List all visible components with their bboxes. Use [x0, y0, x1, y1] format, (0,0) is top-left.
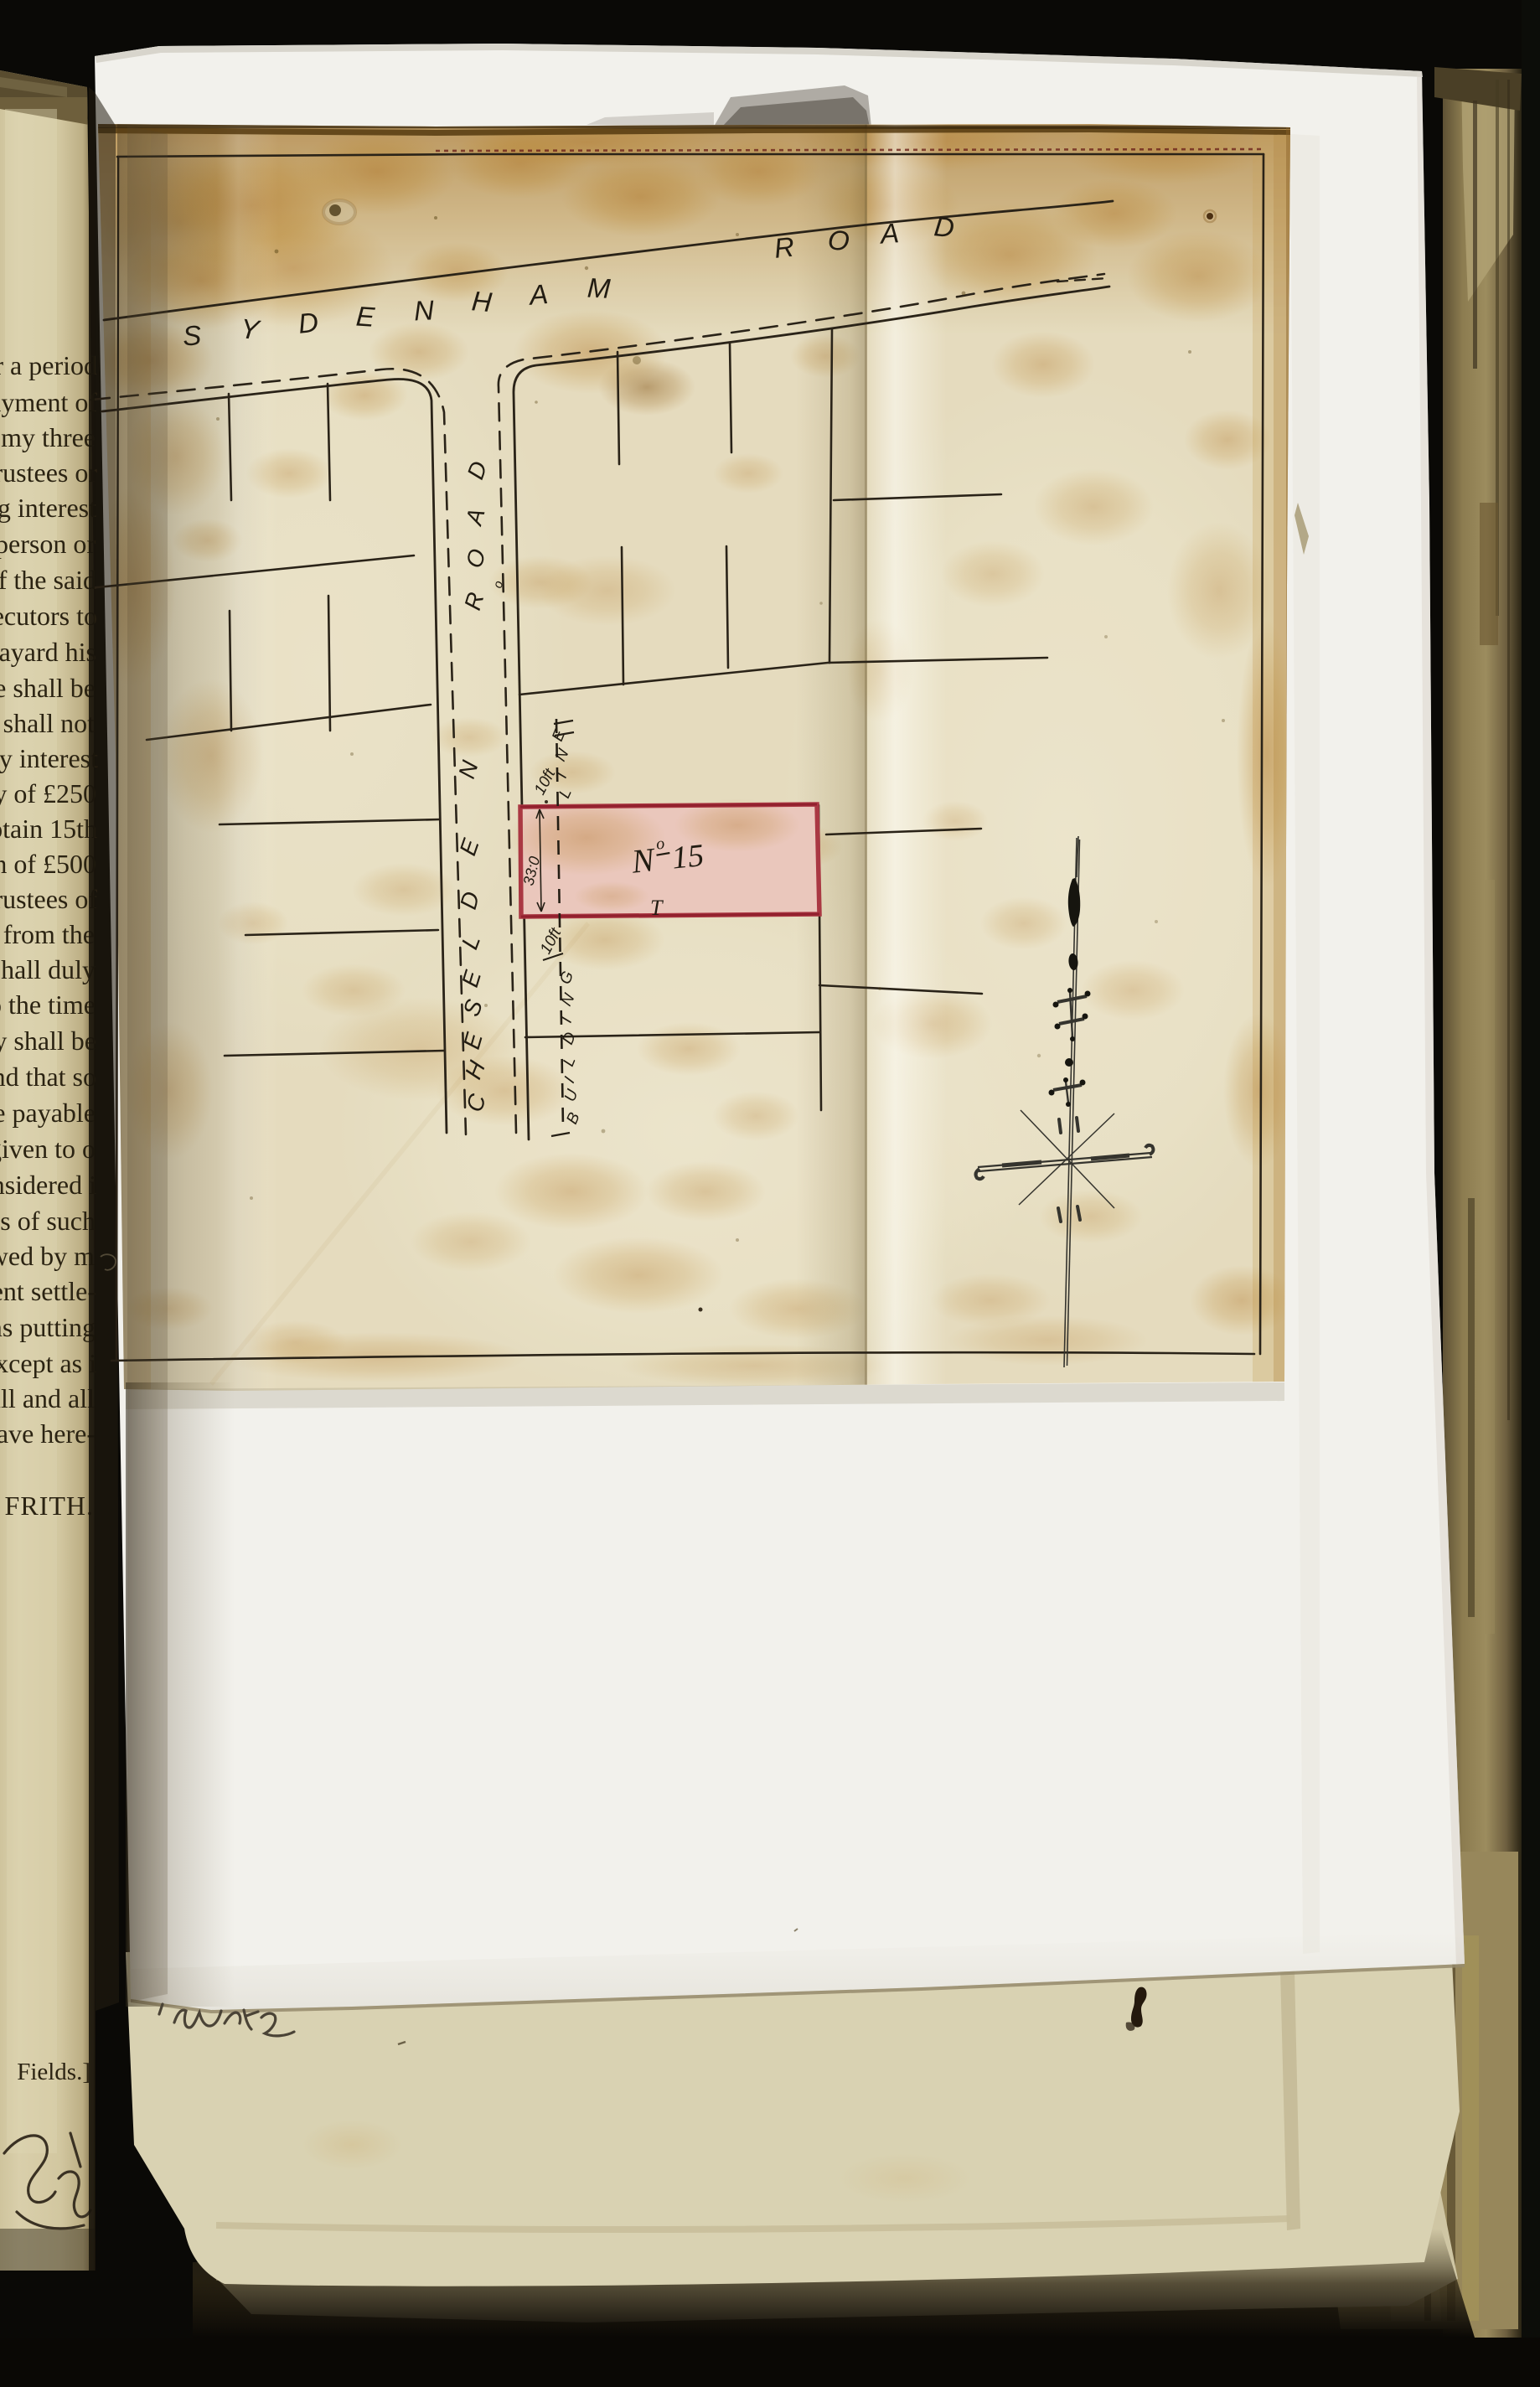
svg-text:shall duly: shall duly [0, 954, 96, 984]
svg-text:my three: my three [1, 422, 96, 452]
svg-text:H: H [470, 285, 493, 318]
svg-text:S: S [182, 319, 203, 351]
svg-text:r a period: r a period [0, 350, 97, 380]
svg-text:ns of such: ns of such [0, 1206, 96, 1236]
svg-text:given to o: given to o [0, 1134, 96, 1164]
svg-text:o the time: o the time [0, 989, 96, 1020]
svg-text:D: D [933, 210, 956, 243]
svg-text:e shall be: e shall be [0, 673, 96, 703]
svg-text:D: D [297, 307, 320, 339]
svg-text:f the said: f the said [0, 565, 96, 595]
svg-text:as putting: as putting [0, 1312, 96, 1342]
svg-text:shall not: shall not [3, 708, 95, 738]
svg-text:A: A [526, 278, 549, 311]
svg-text:ill and all: ill and all [0, 1383, 95, 1413]
svg-text:FRITH.: FRITH. [5, 1491, 94, 1521]
svg-text:O: O [826, 224, 850, 256]
svg-text:15: 15 [670, 838, 705, 876]
svg-text:ecutors to: ecutors to [0, 601, 97, 631]
svg-text:cy shall be: cy shall be [0, 1026, 96, 1056]
svg-text:M: M [587, 272, 612, 304]
svg-text:nsidered i: nsidered i [0, 1170, 96, 1200]
svg-text:from the: from the [3, 919, 95, 949]
svg-text:otain 15th: otain 15th [0, 814, 97, 844]
svg-text:trustees of: trustees of [0, 884, 97, 914]
svg-text:g interest: g interest [0, 493, 96, 523]
svg-text:uent settle-: uent settle- [0, 1276, 96, 1306]
svg-text:ayard his: ayard his [0, 637, 96, 667]
svg-text:n of £500: n of £500 [0, 849, 96, 879]
svg-text:have here-: have here- [0, 1418, 96, 1449]
svg-text:wed by m: wed by m [0, 1241, 95, 1271]
svg-text:N: N [413, 294, 435, 326]
svg-text:E: E [355, 300, 377, 333]
svg-text:be payable: be payable [0, 1098, 96, 1128]
svg-text:R: R [773, 231, 796, 264]
svg-text:person or: person or [0, 529, 96, 559]
svg-text:y of £250: y of £250 [0, 778, 96, 809]
svg-text:ayment of: ayment of [0, 387, 97, 417]
svg-text:except as i: except as i [0, 1348, 96, 1378]
svg-text:rustees or: rustees or [0, 457, 97, 488]
svg-text:Fields.]: Fields.] [17, 2059, 90, 2085]
svg-text:T: T [650, 896, 664, 920]
svg-text:and that so: and that so [0, 1062, 96, 1092]
svg-text:ny interest: ny interest [0, 743, 98, 773]
svg-text:A: A [878, 217, 901, 250]
